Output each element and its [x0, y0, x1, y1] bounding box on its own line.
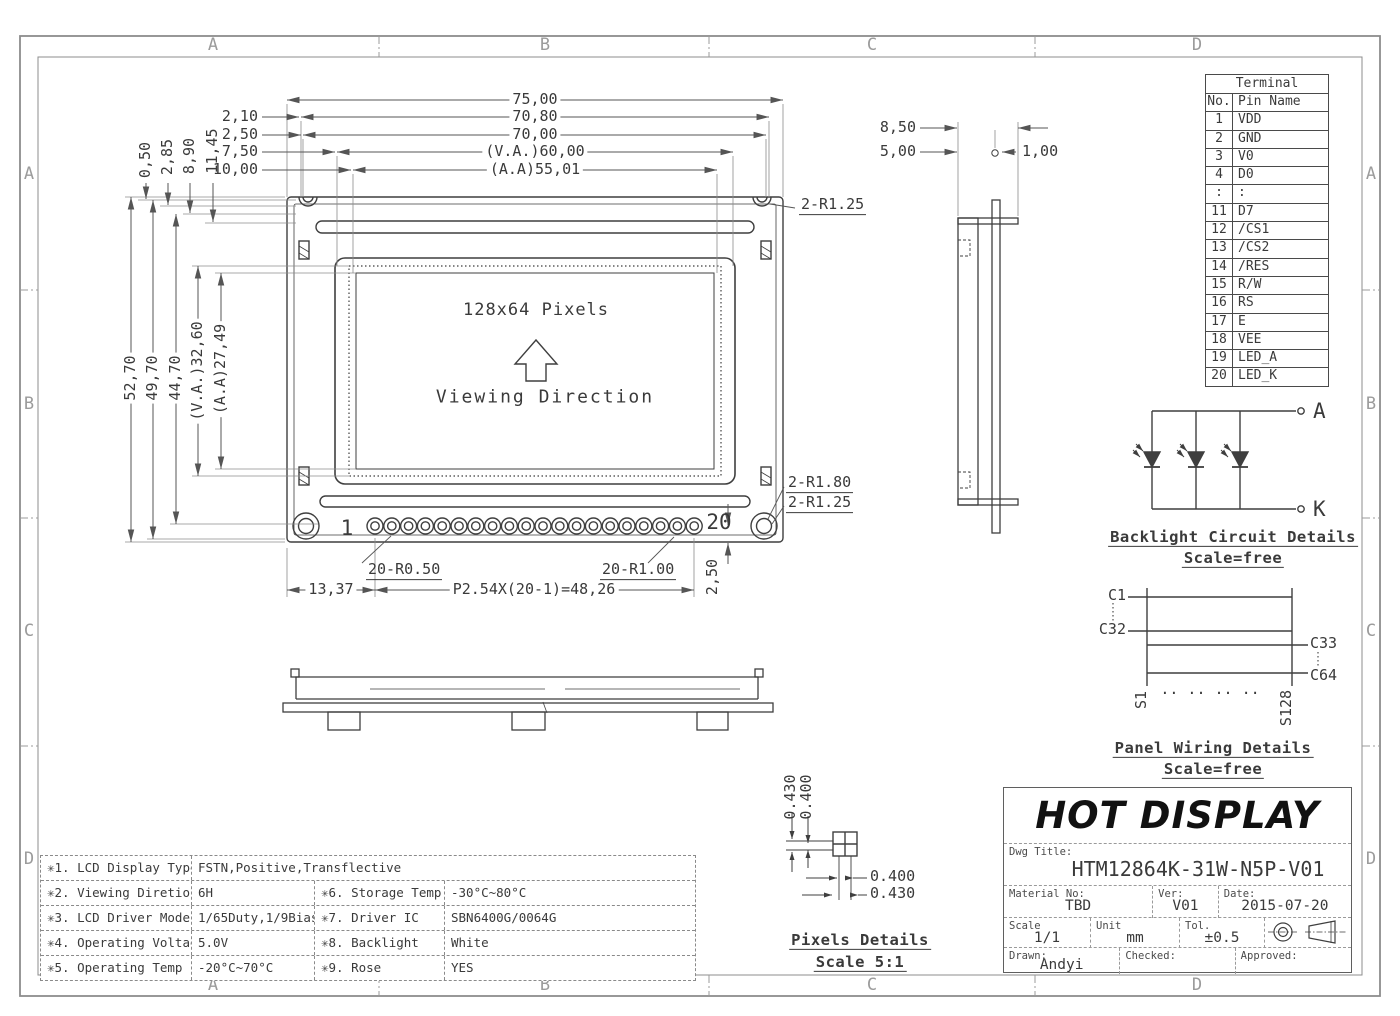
col-header-no: No. [1206, 94, 1233, 111]
pin-row [367, 518, 702, 534]
unit-value: mm [1091, 930, 1179, 946]
terminal-table-header: No. Pin Name [1206, 93, 1328, 111]
zone-letter: A [24, 166, 34, 184]
spec-value: -20°C~70°C [191, 956, 314, 980]
cell-pin-name: D0 [1233, 167, 1328, 184]
table-row: 3V0 [1206, 148, 1328, 166]
ver-value: V01 [1153, 898, 1218, 914]
spec-label: ✳4. Operating Voltage [41, 931, 191, 955]
specs-row: ✳3. LCD Driver Mode 1/65Duty,1/9Bias ✳7.… [41, 905, 695, 930]
zone-letter: C [867, 977, 877, 995]
tol-value: ±0.5 [1180, 930, 1264, 946]
specs-row: ✳5. Operating Temp -20°C~70°C ✳9. Rose Y… [41, 955, 695, 980]
table-row: 16RS [1206, 294, 1328, 312]
zone-letter: C [867, 37, 877, 55]
dim-height-49-70: 49,70 [145, 352, 161, 403]
cell-pin-name: V0 [1233, 149, 1328, 166]
cell-pin-name: RS [1233, 295, 1328, 312]
specs-row: ✳4. Operating Voltage 5.0V ✳8. Backlight… [41, 930, 695, 955]
dim-2-50-bottom: 2,50 [705, 556, 721, 598]
zone-letter: D [1192, 37, 1202, 55]
viewing-direction-arrow [515, 340, 557, 381]
zone-letter: D [1192, 977, 1202, 995]
tol-cell: Tol. ±0.5 [1179, 918, 1264, 948]
table-row: 4D0 [1206, 166, 1328, 184]
zone-letter: C [1366, 623, 1376, 641]
specs-table: ✳1. LCD Display Type FSTN,Positive,Trans… [40, 855, 696, 981]
spec-label: ✳1. LCD Display Type [41, 856, 191, 880]
table-row: 2GND [1206, 130, 1328, 148]
pixels-scale: Scale 5:1 [814, 954, 907, 972]
spec-value: White [444, 931, 695, 955]
spec-label: ✳7. Driver IC [314, 906, 444, 930]
dim-va-height: (V.A.)32,60 [190, 318, 206, 423]
cell-no: 17 [1206, 314, 1233, 331]
table-row: 19LED_A [1206, 349, 1328, 367]
cell-pin-name: /CS2 [1233, 240, 1328, 257]
title-block-row: Drawn: Andyi Checked: Approved: [1004, 947, 1351, 973]
panel-c33-label: C33 [1310, 636, 1337, 652]
table-row: 17E [1206, 313, 1328, 331]
spec-label: ✳5. Operating Temp [41, 956, 191, 980]
company-logo: HOT DISPLAY [1004, 788, 1351, 843]
dim-pin-pad-radius: 20-R1.00 [600, 562, 676, 580]
pixel-dim-h-0430: 0.430 [870, 886, 915, 902]
dim-thickness-5-00: 5,00 [880, 144, 916, 160]
dim-corner-radius-top: 2-R1.25 [799, 197, 866, 215]
unit-cell: Unit mm [1090, 918, 1179, 948]
cell-pin-name: /CS1 [1233, 222, 1328, 239]
title-block-row: Material No: TBD Ver: V01 Date: 2015-07-… [1004, 885, 1351, 917]
panel-scale: Scale=free [1162, 761, 1264, 779]
ver-cell: Ver: V01 [1152, 886, 1218, 918]
spec-value: 1/65Duty,1/9Bias [191, 906, 314, 930]
dim-offset-2-10: 2,10 [222, 109, 258, 125]
viewing-direction-label: Viewing Direction [436, 389, 654, 408]
checked-cell: Checked: [1119, 948, 1234, 974]
pin-number-last: 20 [706, 511, 731, 533]
va-dotted-border [349, 266, 721, 476]
dim-aa-width: (A.A)55,01 [487, 162, 583, 178]
spec-value: -30°C~80°C [444, 881, 695, 905]
backlight-scale: Scale=free [1182, 550, 1284, 568]
terminal-table-title: Terminal [1206, 75, 1328, 93]
dwg-title-value: HTM12864K-31W-N5P-V01 [1049, 857, 1347, 881]
projection-symbol-icon [1265, 918, 1350, 946]
table-row: 18VEE [1206, 331, 1328, 349]
panel-dots: .. .. .. .. [1160, 682, 1259, 698]
pixel-dim-h-0400: 0.400 [870, 869, 915, 885]
cell-no: 16 [1206, 295, 1233, 312]
projection-symbol-cell [1264, 918, 1351, 948]
col-header-pin-name: Pin Name [1233, 94, 1328, 111]
scale-cell: Scale 1/1 [1004, 918, 1090, 948]
dim-8-90: 8,90 [182, 138, 198, 174]
spec-value: SBN6400G/0064G [444, 906, 695, 930]
title-block: HOT DISPLAY Dwg Title: HTM12864K-31W-N5P… [1003, 787, 1352, 973]
backlight-circuit [1133, 408, 1304, 512]
dim-offset-7-50: 7,50 [222, 144, 258, 160]
table-row: 11D7 [1206, 203, 1328, 221]
dim-aa-height: (A.A)27,49 [213, 321, 229, 417]
dim-pin-hole-radius: 20-R0.50 [366, 562, 442, 580]
dim-11-45: 11,45 [205, 128, 221, 173]
dim-height-44-70: 44,70 [168, 352, 184, 403]
cell-no: 2 [1206, 131, 1233, 148]
approved-cell: Approved: [1235, 948, 1351, 974]
panel-c32-label: C32 [1099, 622, 1126, 638]
cell-pin-name: D7 [1233, 204, 1328, 221]
cell-pin-name: R/W [1233, 277, 1328, 294]
dim-mount-radius-1-25: 2-R1.25 [786, 495, 853, 513]
cell-no: 1 [1206, 112, 1233, 129]
drawing-sheet: A B C D A B C D A B C D A B C D 75,00 70… [0, 0, 1400, 1016]
spec-label: ✳8. Backlight [314, 931, 444, 955]
dim-offset-2-50: 2,50 [222, 127, 258, 143]
zone-letter: A [208, 37, 218, 55]
cell-no: 13 [1206, 240, 1233, 257]
cell-pin-name: LED_A [1233, 350, 1328, 367]
cell-pin-name: : [1233, 185, 1328, 202]
display-resolution-label: 128x64 Pixels [463, 302, 609, 320]
cathode-label: K [1313, 498, 1326, 520]
pixel-dim-v-0400: 0.400 [799, 774, 815, 819]
zone-letter: D [24, 851, 34, 869]
dim-0-50: 0,50 [138, 142, 154, 178]
table-row: 14/RES [1206, 258, 1328, 276]
panel-title: Panel Wiring Details [1113, 740, 1314, 758]
drawn-cell: Drawn: Andyi [1004, 948, 1119, 974]
date-cell: Date: 2015-07-20 [1218, 886, 1351, 918]
spec-value: 5.0V [191, 931, 314, 955]
spec-label: ✳3. LCD Driver Mode [41, 906, 191, 930]
checked-label: Checked: [1125, 950, 1176, 962]
cell-no: 3 [1206, 149, 1233, 166]
cell-no: 4 [1206, 167, 1233, 184]
table-row: 12/CS1 [1206, 221, 1328, 239]
zone-letter: B [1366, 396, 1376, 414]
zone-letter: A [1366, 166, 1376, 184]
cell-pin-name: E [1233, 314, 1328, 331]
edge-tabs [299, 241, 771, 485]
pixels-title: Pixels Details [789, 932, 931, 950]
scale-value: 1/1 [1004, 930, 1090, 946]
cell-no: 11 [1206, 204, 1233, 221]
table-row: 1VDD [1206, 111, 1328, 129]
spec-value: YES [444, 956, 695, 980]
spec-value: 6H [191, 881, 314, 905]
dwg-title-cell: Dwg Title: HTM12864K-31W-N5P-V01 [1004, 843, 1351, 885]
cell-pin-name: LED_K [1233, 368, 1328, 385]
spec-label: ✳9. Rose [314, 956, 444, 980]
cell-pin-name: VEE [1233, 332, 1328, 349]
dim-pin-offset: 13,37 [305, 582, 356, 598]
backlight-title: Backlight Circuit Details [1108, 529, 1358, 547]
zone-letter: B [540, 37, 550, 55]
spec-value: FSTN,Positive,Transflective [191, 856, 695, 880]
pixels-detail [786, 812, 867, 900]
cell-no: 12 [1206, 222, 1233, 239]
dim-2-85: 2,85 [160, 139, 176, 175]
pin-number-first: 1 [341, 517, 354, 539]
title-block-row: Scale 1/1 Unit mm Tol. ±0.5 [1004, 917, 1351, 947]
table-row: :: [1206, 184, 1328, 202]
zone-letter: D [1366, 851, 1376, 869]
zone-letter: B [24, 396, 34, 414]
bottom-profile-view [283, 669, 773, 730]
cell-pin-name: VDD [1233, 112, 1328, 129]
cell-no: 20 [1206, 368, 1233, 385]
zone-letter: C [24, 623, 34, 641]
approved-label: Approved: [1241, 950, 1298, 962]
table-row: 13/CS2 [1206, 239, 1328, 257]
terminal-table: Terminal No. Pin Name 1VDD 2GND 3V0 4D0 … [1205, 74, 1329, 387]
dim-overall-width: 75,00 [509, 92, 560, 108]
spec-label: ✳6. Storage Temp [314, 881, 444, 905]
cell-no: : [1206, 185, 1233, 202]
cell-pin-name: GND [1233, 131, 1328, 148]
anode-label: A [1313, 400, 1326, 422]
dim-va-width: (V.A.)60,00 [482, 144, 587, 160]
dim-width-70: 70,00 [509, 127, 560, 143]
spec-label: ✳2. Viewing Diretion [41, 881, 191, 905]
side-view [958, 200, 1018, 533]
dim-pcb-1-00: 1,00 [1022, 144, 1058, 160]
cell-no: 18 [1206, 332, 1233, 349]
front-view [287, 197, 783, 542]
drawn-value: Andyi [1004, 957, 1119, 973]
dim-width-70-80: 70,80 [509, 109, 560, 125]
panel-c1-label: C1 [1108, 588, 1126, 604]
date-value: 2015-07-20 [1219, 898, 1351, 914]
panel-s128-label: S128 [1279, 690, 1295, 726]
cell-no: 19 [1206, 350, 1233, 367]
table-row: 20LED_K [1206, 367, 1328, 385]
cell-pin-name: /RES [1233, 259, 1328, 276]
panel-s1-label: S1 [1134, 691, 1150, 709]
specs-row: ✳2. Viewing Diretion 6H ✳6. Storage Temp… [41, 880, 695, 905]
specs-row: ✳1. LCD Display Type FSTN,Positive,Trans… [41, 856, 695, 880]
led-symbols [1133, 444, 1248, 467]
cell-no: 14 [1206, 259, 1233, 276]
dim-thickness-8-50: 8,50 [880, 120, 916, 136]
cell-no: 15 [1206, 277, 1233, 294]
material-value: TBD [1004, 898, 1152, 914]
material-cell: Material No: TBD [1004, 886, 1152, 918]
dim-overall-height: 52,70 [123, 352, 139, 403]
panel-c64-label: C64 [1310, 668, 1337, 684]
table-row: 15R/W [1206, 276, 1328, 294]
panel-wiring [1113, 588, 1318, 686]
dim-mount-radius-1-80: 2-R1.80 [786, 475, 853, 493]
dim-pin-pitch: P2.54X(20-1)=48,26 [450, 582, 619, 598]
